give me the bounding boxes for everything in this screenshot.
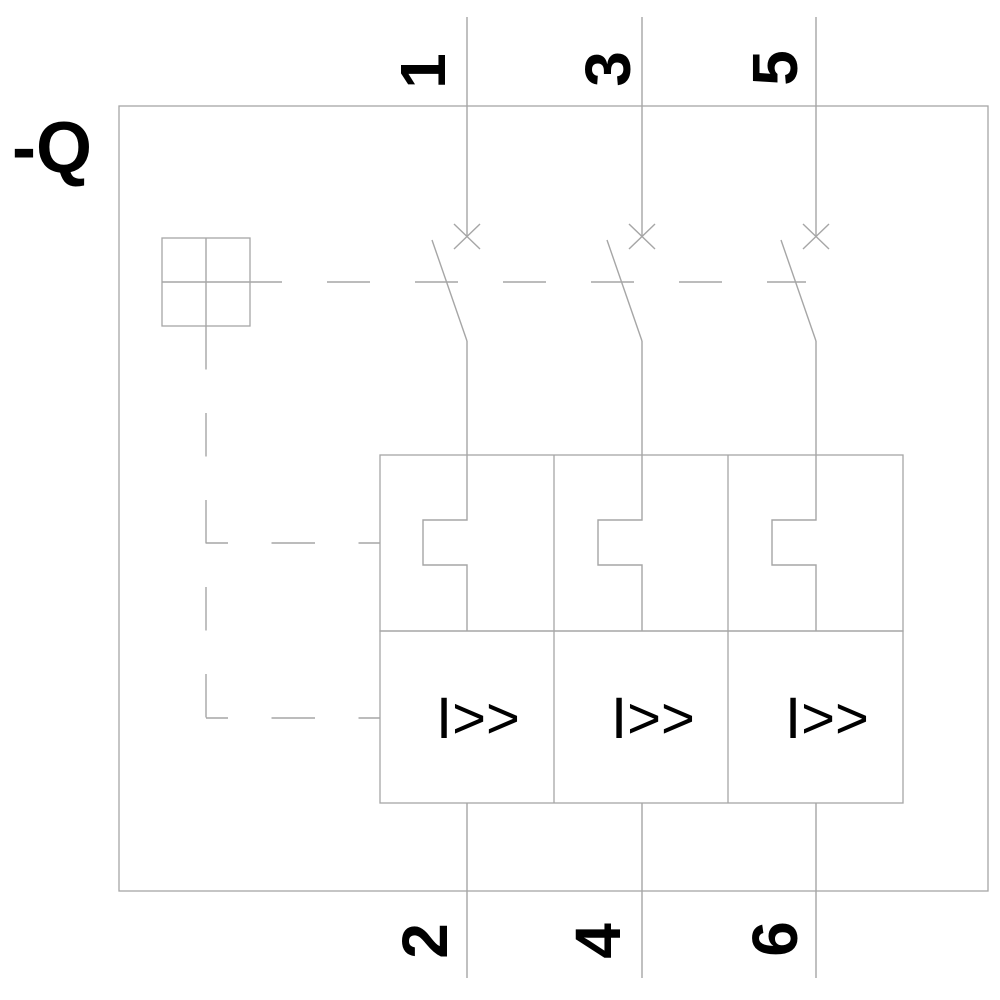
switch-lever-3 (781, 240, 816, 341)
pole-1 (423, 17, 480, 978)
terminal-label-3: 3 (572, 51, 644, 87)
terminal-label-5: 5 (739, 50, 811, 86)
terminal-label-2: 2 (389, 923, 461, 959)
instantaneous-trip-label-3: I>> (785, 686, 869, 751)
component-label: -Q (12, 108, 92, 188)
schematic-linework (119, 17, 988, 978)
instantaneous-trip-label-1: I>> (436, 686, 520, 751)
pole-3 (772, 17, 829, 978)
terminal-label-6: 6 (739, 921, 811, 957)
terminal-label-4: 4 (562, 923, 634, 959)
terminal-label-1: 1 (387, 53, 459, 89)
thermal-overload-notch-symbol-3 (772, 341, 816, 631)
mechanical-linkage-lines (206, 282, 806, 718)
pole-2 (598, 17, 655, 978)
thermal-overload-notch-symbol-1 (423, 341, 467, 631)
circuit-diagram-canvas: -Q 1 3 5 2 4 6 I>> I>> I>> (0, 0, 1000, 1000)
instantaneous-trip-label-2: I>> (611, 686, 695, 751)
circuit-diagram-page: -Q 1 3 5 2 4 6 I>> I>> I>> (0, 0, 1000, 1000)
switch-lever-2 (607, 240, 642, 341)
switch-lever-1 (432, 240, 467, 341)
labels: -Q 1 3 5 2 4 6 I>> I>> I>> (12, 50, 869, 959)
actuator-mechanism-icon (162, 238, 250, 326)
thermal-overload-notch-symbol-2 (598, 341, 642, 631)
